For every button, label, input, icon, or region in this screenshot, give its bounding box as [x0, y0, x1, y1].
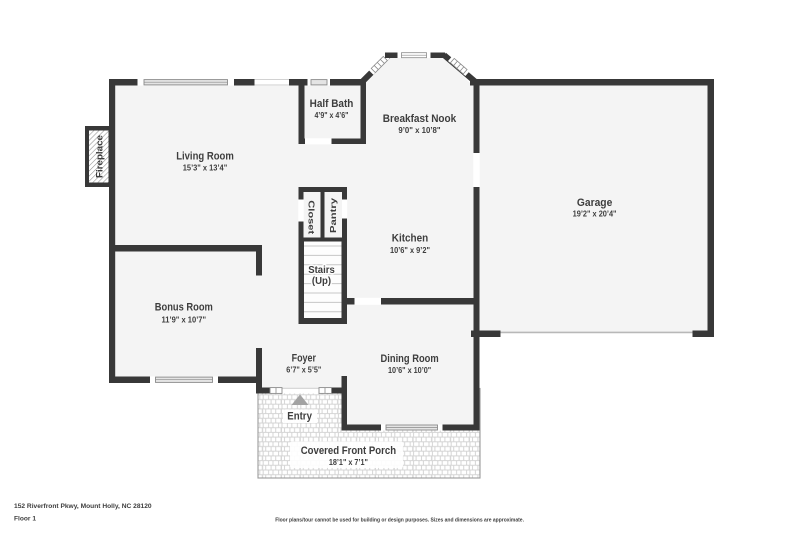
svg-text:10’6" x 10’0": 10’6" x 10’0"	[388, 365, 431, 375]
svg-text:Pantry: Pantry	[328, 198, 338, 233]
svg-text:10’6" x 9’2": 10’6" x 9’2"	[390, 245, 430, 255]
svg-text:Half Bath: Half Bath	[310, 98, 354, 110]
svg-text:Living Room: Living Room	[176, 151, 234, 163]
svg-text:18’1" x 7’1": 18’1" x 7’1"	[329, 457, 368, 467]
svg-text:Garage: Garage	[577, 197, 612, 209]
svg-text:152 Riverfront Pkwy, Mount Hol: 152 Riverfront Pkwy, Mount Holly, NC 281…	[14, 503, 152, 510]
svg-text:Dining Room: Dining Room	[381, 353, 439, 365]
svg-text:15’3" x 13’4": 15’3" x 13’4"	[183, 162, 228, 172]
svg-text:Breakfast Nook: Breakfast Nook	[383, 113, 457, 125]
svg-text:(Up): (Up)	[312, 276, 331, 287]
svg-text:Covered Front Porch: Covered Front Porch	[301, 445, 396, 457]
svg-text:Bonus Room: Bonus Room	[155, 302, 213, 314]
svg-text:Closet: Closet	[307, 200, 317, 234]
svg-text:11’9" x 10’7": 11’9" x 10’7"	[162, 314, 207, 324]
svg-text:Kitchen: Kitchen	[392, 233, 428, 245]
svg-text:Floor plans/tour cannot be use: Floor plans/tour cannot be used for buil…	[275, 518, 524, 524]
svg-text:9’0" x 10’8": 9’0" x 10’8"	[398, 125, 440, 135]
svg-text:Stairs: Stairs	[308, 265, 335, 276]
svg-text:Floor 1: Floor 1	[14, 515, 36, 522]
svg-text:6’7" x 5’5": 6’7" x 5’5"	[286, 365, 321, 375]
svg-text:Foyer: Foyer	[292, 353, 317, 365]
svg-text:4’9" x 4’6": 4’9" x 4’6"	[315, 110, 349, 120]
svg-text:Entry: Entry	[287, 410, 312, 422]
svg-text:19’2" x 20’4": 19’2" x 20’4"	[573, 208, 617, 218]
svg-text:Fireplace: Fireplace	[93, 135, 104, 178]
